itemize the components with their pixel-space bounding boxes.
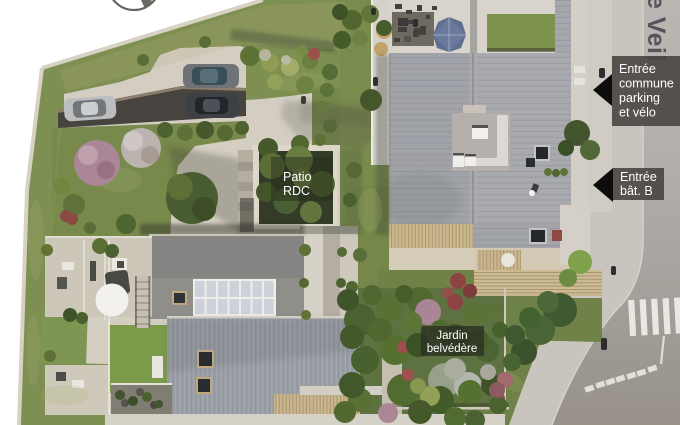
- svg-text:Jardin: Jardin: [436, 330, 467, 342]
- svg-text:commune: commune: [619, 77, 674, 91]
- svg-text:et vélo: et vélo: [619, 106, 656, 120]
- svg-text:RDC: RDC: [283, 184, 310, 198]
- svg-text:bât. B: bât. B: [620, 184, 653, 198]
- svg-text:belvédère: belvédère: [427, 343, 478, 355]
- svg-text:Entrée: Entrée: [620, 170, 657, 184]
- svg-text:Entrée: Entrée: [619, 62, 656, 76]
- svg-text:parking: parking: [619, 91, 660, 105]
- svg-text:Patio: Patio: [283, 170, 312, 184]
- svg-text:e Veil: e Veil: [642, 0, 670, 62]
